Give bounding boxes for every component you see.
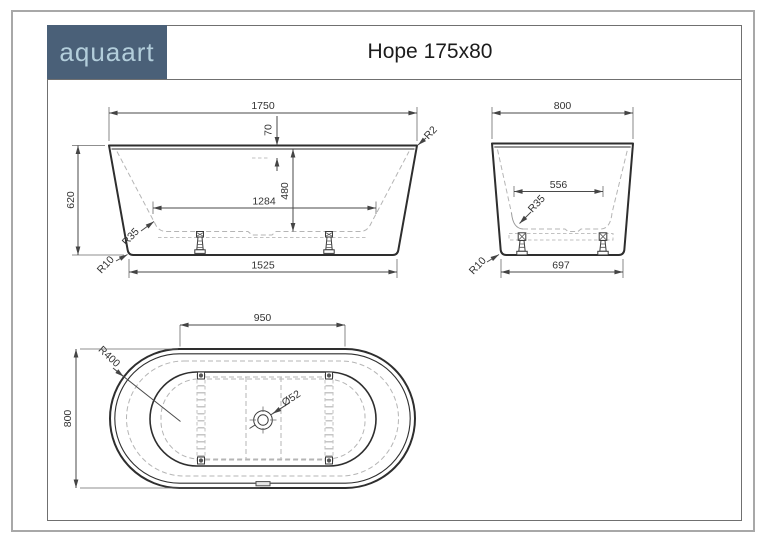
dim-side-r-inner: R35 [526,193,548,215]
side-tub-outline [492,144,633,256]
dim-front-height: 620 [65,191,77,209]
technical-drawing: 1750 620 70 480 1284 1525 R35 [0,0,768,543]
dim-front-overflow: 70 [263,124,275,136]
dim-top-straight: 950 [254,312,272,324]
dim-side-floor-width: 556 [550,179,568,191]
dim-front-depth: 480 [279,182,291,200]
top-frame-rail-right [325,374,333,462]
front-foot-left [195,232,205,254]
top-overflow-mark [256,482,270,486]
top-bolt-tl [198,372,205,379]
dim-side-r-bottom: R10 [467,255,489,277]
dim-top-width: 800 [62,410,74,428]
dim-front-width-top: 1750 [251,100,275,112]
dim-front-floor-width: 1284 [252,196,276,208]
side-basin-corner [512,213,524,229]
side-frame-bolt-left [518,233,526,241]
side-view: 800 556 R35 697 R10 [467,100,633,278]
top-bolt-bl [198,457,205,464]
dim-top-r-end: R400 [96,344,123,370]
top-drain [250,407,277,434]
dim-side-width-bottom: 697 [552,260,570,272]
top-bolt-tr [326,372,333,379]
top-view: Ø52 R400 950 800 [62,312,415,488]
dim-front-r-bottom: R10 [95,254,117,276]
dim-front-width-bottom: 1525 [251,260,275,272]
side-frame-bolt-right [599,233,607,241]
drawing-sheet: aquaart Hope 175x80 [0,0,768,543]
top-frame-rail-left [197,374,205,462]
side-basin-hidden [523,150,628,232]
side-basin-hidden-left [498,150,512,214]
top-bolt-br [326,457,333,464]
front-basin-hidden [117,152,409,236]
dim-top-drain: Ø52 [280,388,303,409]
front-view: 1750 620 70 480 1284 1525 R35 [65,100,440,278]
front-foot-right [324,232,334,254]
dim-side-width-top: 800 [554,100,572,112]
side-foot-right [598,241,608,255]
side-foot-left [517,241,527,255]
